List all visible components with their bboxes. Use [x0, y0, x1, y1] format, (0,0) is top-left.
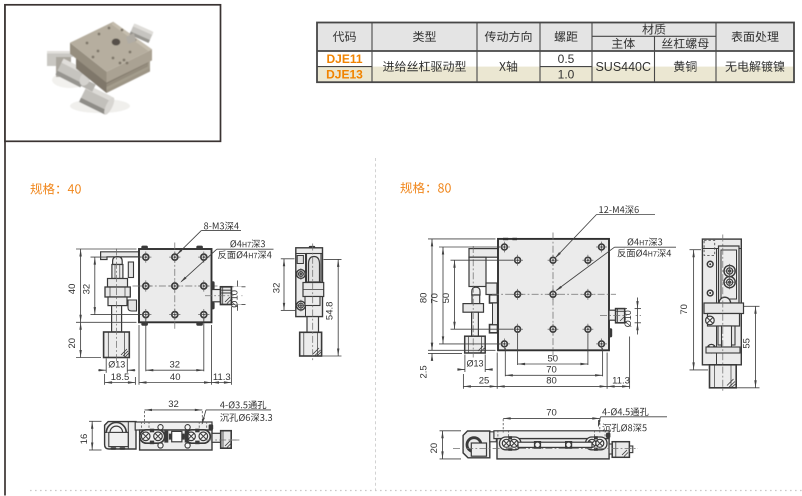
svg-text:Ø10: Ø10 [623, 310, 633, 327]
svg-text:18.5: 18.5 [111, 372, 130, 383]
svg-text:Ø13: Ø13 [108, 359, 125, 369]
svg-text:50: 50 [548, 353, 559, 364]
svg-text:50: 50 [441, 293, 452, 304]
svg-text:16: 16 [79, 434, 90, 445]
svg-text:25: 25 [479, 376, 490, 387]
svg-text:DJE13: DJE13 [326, 68, 363, 82]
svg-text:Ø10: Ø10 [230, 290, 241, 308]
svg-text:55: 55 [742, 338, 753, 349]
svg-text:32: 32 [271, 283, 282, 294]
svg-text:SUS440C: SUS440C [595, 60, 651, 74]
svg-text:Ø13: Ø13 [466, 358, 483, 368]
svg-text:70: 70 [679, 304, 690, 315]
svg-text:20: 20 [429, 443, 440, 454]
svg-text:54.8: 54.8 [325, 302, 336, 321]
svg-text:11.3: 11.3 [213, 372, 231, 383]
svg-text:32: 32 [82, 284, 93, 295]
svg-text:0.5: 0.5 [558, 52, 575, 66]
svg-text:32: 32 [168, 399, 179, 410]
svg-text:70: 70 [546, 365, 557, 376]
svg-text:32: 32 [170, 360, 181, 371]
svg-text:80: 80 [419, 293, 430, 304]
svg-text:DJE11: DJE11 [326, 52, 362, 66]
svg-text:80: 80 [546, 376, 557, 387]
svg-text:1.0: 1.0 [558, 68, 575, 82]
svg-text:70: 70 [546, 408, 557, 419]
svg-text:20: 20 [67, 338, 78, 349]
svg-text:40: 40 [67, 284, 78, 295]
svg-text:70: 70 [430, 293, 441, 304]
svg-text:40: 40 [170, 372, 181, 383]
svg-text:11.3: 11.3 [612, 376, 630, 387]
svg-text:2.5: 2.5 [419, 365, 430, 378]
